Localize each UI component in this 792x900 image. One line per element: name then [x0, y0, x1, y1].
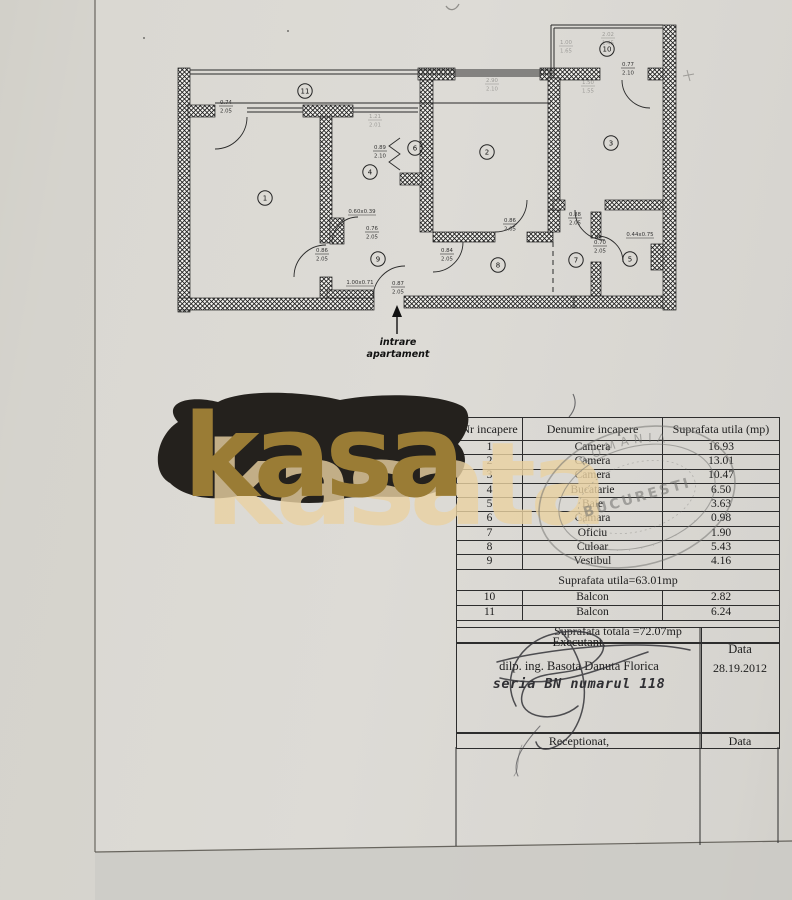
- signature: [0, 0, 792, 900]
- scanned-page: 12345678910110.742.050.892.100.762.050.8…: [0, 0, 792, 900]
